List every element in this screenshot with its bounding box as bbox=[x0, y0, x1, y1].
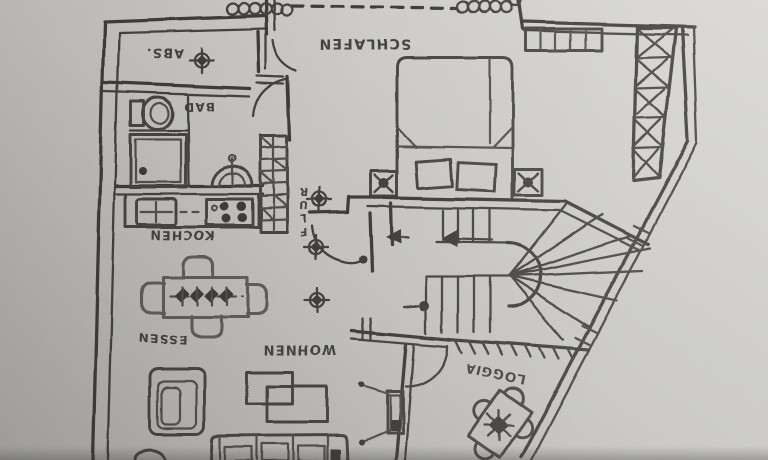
bed bbox=[397, 58, 512, 198]
shower bbox=[131, 134, 186, 187]
floor-plan-drawing: SCHLAFEN ABS. BAD KOCHEN FLUR ESSEN WOHN… bbox=[0, 0, 768, 460]
sofa bbox=[211, 435, 348, 460]
radiator-coil-left bbox=[228, 4, 293, 16]
room-label-essen: ESSEN bbox=[137, 331, 187, 347]
direction-arrow bbox=[386, 229, 408, 244]
stove bbox=[206, 199, 252, 225]
direction-arrow bbox=[441, 230, 493, 247]
window-band bbox=[228, 0, 522, 16]
armchair bbox=[150, 369, 204, 434]
flur-door-arc bbox=[312, 226, 362, 263]
rug-circle bbox=[134, 450, 166, 460]
nightstand-right bbox=[514, 169, 542, 195]
chair bbox=[247, 284, 267, 314]
chair bbox=[183, 257, 213, 277]
room-label-bad: BAD bbox=[183, 99, 215, 114]
chair bbox=[142, 283, 164, 313]
plant-icon bbox=[485, 410, 513, 440]
window-dashed-line bbox=[292, 6, 456, 8]
room-label-loggia: LOGGIA bbox=[463, 359, 527, 387]
tv bbox=[358, 382, 403, 445]
ceiling-lamp-icon bbox=[305, 288, 329, 312]
bedroom-door-arc bbox=[273, 40, 296, 70]
sink bbox=[137, 199, 176, 225]
newel-dot bbox=[419, 301, 429, 311]
chair bbox=[191, 316, 221, 337]
candles bbox=[174, 287, 234, 305]
coffee-tables bbox=[247, 372, 327, 422]
room-label-abs: ABS. bbox=[145, 46, 183, 62]
room-kochen bbox=[126, 196, 258, 227]
dining-area bbox=[142, 257, 267, 337]
loggia-area bbox=[453, 375, 547, 460]
room-label-wohnen: WOHNEN bbox=[262, 341, 336, 356]
toilet bbox=[131, 97, 173, 129]
ceiling-lamp-icon bbox=[307, 188, 331, 212]
stair-treads-lower bbox=[442, 277, 490, 332]
washbasin bbox=[212, 155, 252, 186]
door-swings-corridor bbox=[254, 40, 296, 140]
room-label-schlafen: SCHLAFEN bbox=[319, 36, 411, 52]
tall-cabinet-hatched bbox=[260, 136, 287, 232]
room-abs bbox=[104, 32, 284, 96]
room-label-flur: FLUR bbox=[298, 186, 308, 238]
room-label-kochen: KOCHEN bbox=[149, 227, 215, 243]
ceiling-lamp-icon bbox=[189, 48, 213, 72]
braced-wall-x bbox=[633, 28, 676, 181]
nightstand-left bbox=[371, 171, 397, 196]
room-schlafen bbox=[371, 28, 676, 198]
pillow-left bbox=[416, 159, 453, 188]
living-area bbox=[134, 288, 403, 460]
room-flur bbox=[304, 188, 392, 271]
radiator-coil-right bbox=[458, 0, 522, 13]
pillow-right bbox=[457, 162, 495, 191]
staircase bbox=[368, 197, 650, 340]
floor-plan-photo: SCHLAFEN ABS. BAD KOCHEN FLUR ESSEN WOHN… bbox=[0, 0, 768, 460]
